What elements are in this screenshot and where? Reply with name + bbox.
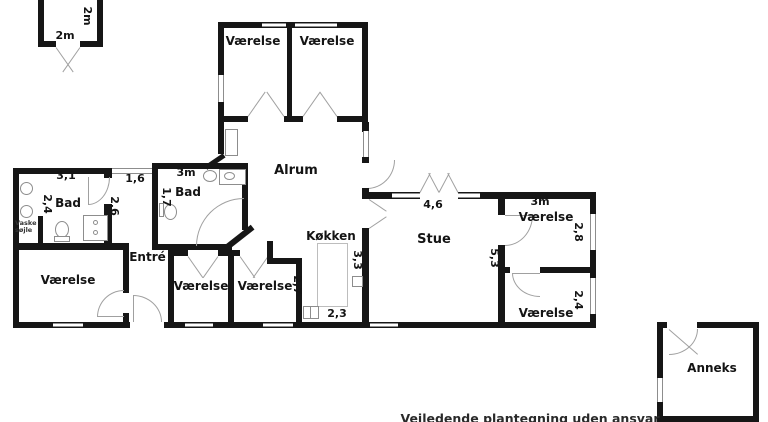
door-arc [97,290,124,317]
measure-hall-width: 1,6 [120,173,150,185]
window [218,75,224,102]
window [363,131,369,158]
window [590,278,596,314]
door-line [369,199,387,212]
vanity-icon [83,215,108,241]
measure-kitchen-bottom: 2,3 [321,308,353,320]
knob-icon [93,220,98,225]
wall [13,322,596,328]
room-label-bedroom-ne: Værelse [289,35,365,48]
window [53,323,83,327]
window [263,323,293,327]
wall [123,243,129,293]
door-line [319,92,337,117]
wall [38,0,44,47]
door-line [203,256,219,278]
measure-bad-left-width: 3,1 [50,170,82,182]
window [262,23,286,27]
laundry-line2: søjle [15,226,32,234]
kitchen-sink-icon [310,306,319,319]
wall [657,322,663,420]
window [392,193,420,198]
room-label-bedroom-sw: Værelse [30,274,106,287]
door-arc [196,198,244,246]
toilet-tank-icon [54,236,70,242]
measure-bad-right-width: 3m [170,167,202,179]
wall [218,116,368,122]
wall [80,41,103,47]
door-line [447,173,458,193]
wall [362,228,369,328]
window [295,23,337,27]
door-gap [248,116,284,122]
door-line [248,92,266,117]
room-label-stue: Stue [396,233,472,246]
room-label-kitchen: Køkken [293,230,369,243]
door-line [188,256,204,278]
wall [152,163,158,250]
door-line [266,92,284,117]
door-line [369,216,387,229]
door-arc [133,295,162,322]
door-line [428,173,439,193]
window [185,323,213,327]
window [590,214,596,250]
sink-icon [224,172,235,180]
measure-stue-door: 4,6 [417,199,449,211]
window [370,323,398,327]
door-gap [130,322,164,328]
measure-hall-length: 2,6 [108,192,120,220]
door-line [303,92,321,117]
measure-shed-width: 2m [52,30,78,42]
room-label-bad-right: Bad [170,186,206,199]
measure-bedroom-s2: 2,7 [291,271,303,299]
wall [218,22,368,28]
appliance-icon [352,276,363,287]
wall [753,322,759,420]
wall [97,0,103,47]
window [657,378,663,402]
door-arc [367,160,395,189]
room-label-bad-left: Bad [50,197,86,210]
knob-icon [93,230,98,235]
measure-shed-depth: 2m [81,3,93,29]
door-gap [303,116,337,122]
door-arc [512,273,540,297]
door-gap [240,250,268,256]
door-arc [88,177,110,205]
wardrobe-icon [225,129,238,156]
measure-kitchen-right: 3,3 [351,246,363,274]
window [458,193,480,198]
room-label-alrum: Alrum [258,164,334,177]
laundry-label: Vaske søjle [15,220,41,234]
wall [498,245,505,328]
sink-icon [203,170,217,182]
sink-icon [20,205,33,218]
measure-bedroom-e1-width: 3m [524,196,556,208]
measure-bedroom-e1-depth: 2,8 [572,218,584,246]
wall [13,243,129,250]
floor-plan: 2m 2m Værelse Værelse Alrum 3,1 2,4 Bad … [0,0,768,422]
sink-icon [20,182,33,195]
door-gap [667,322,697,328]
room-label-bedroom-nw: Værelse [215,35,291,48]
kitchen-counter-icon [317,243,348,307]
measure-bedroom-e2-depth: 2,4 [572,286,584,314]
disclaimer-text: Vejledende plantegning uden ansvar [380,411,680,422]
door-gap [188,250,218,256]
room-label-anneks: Anneks [674,362,750,375]
wall [218,120,224,154]
wall [498,192,505,215]
